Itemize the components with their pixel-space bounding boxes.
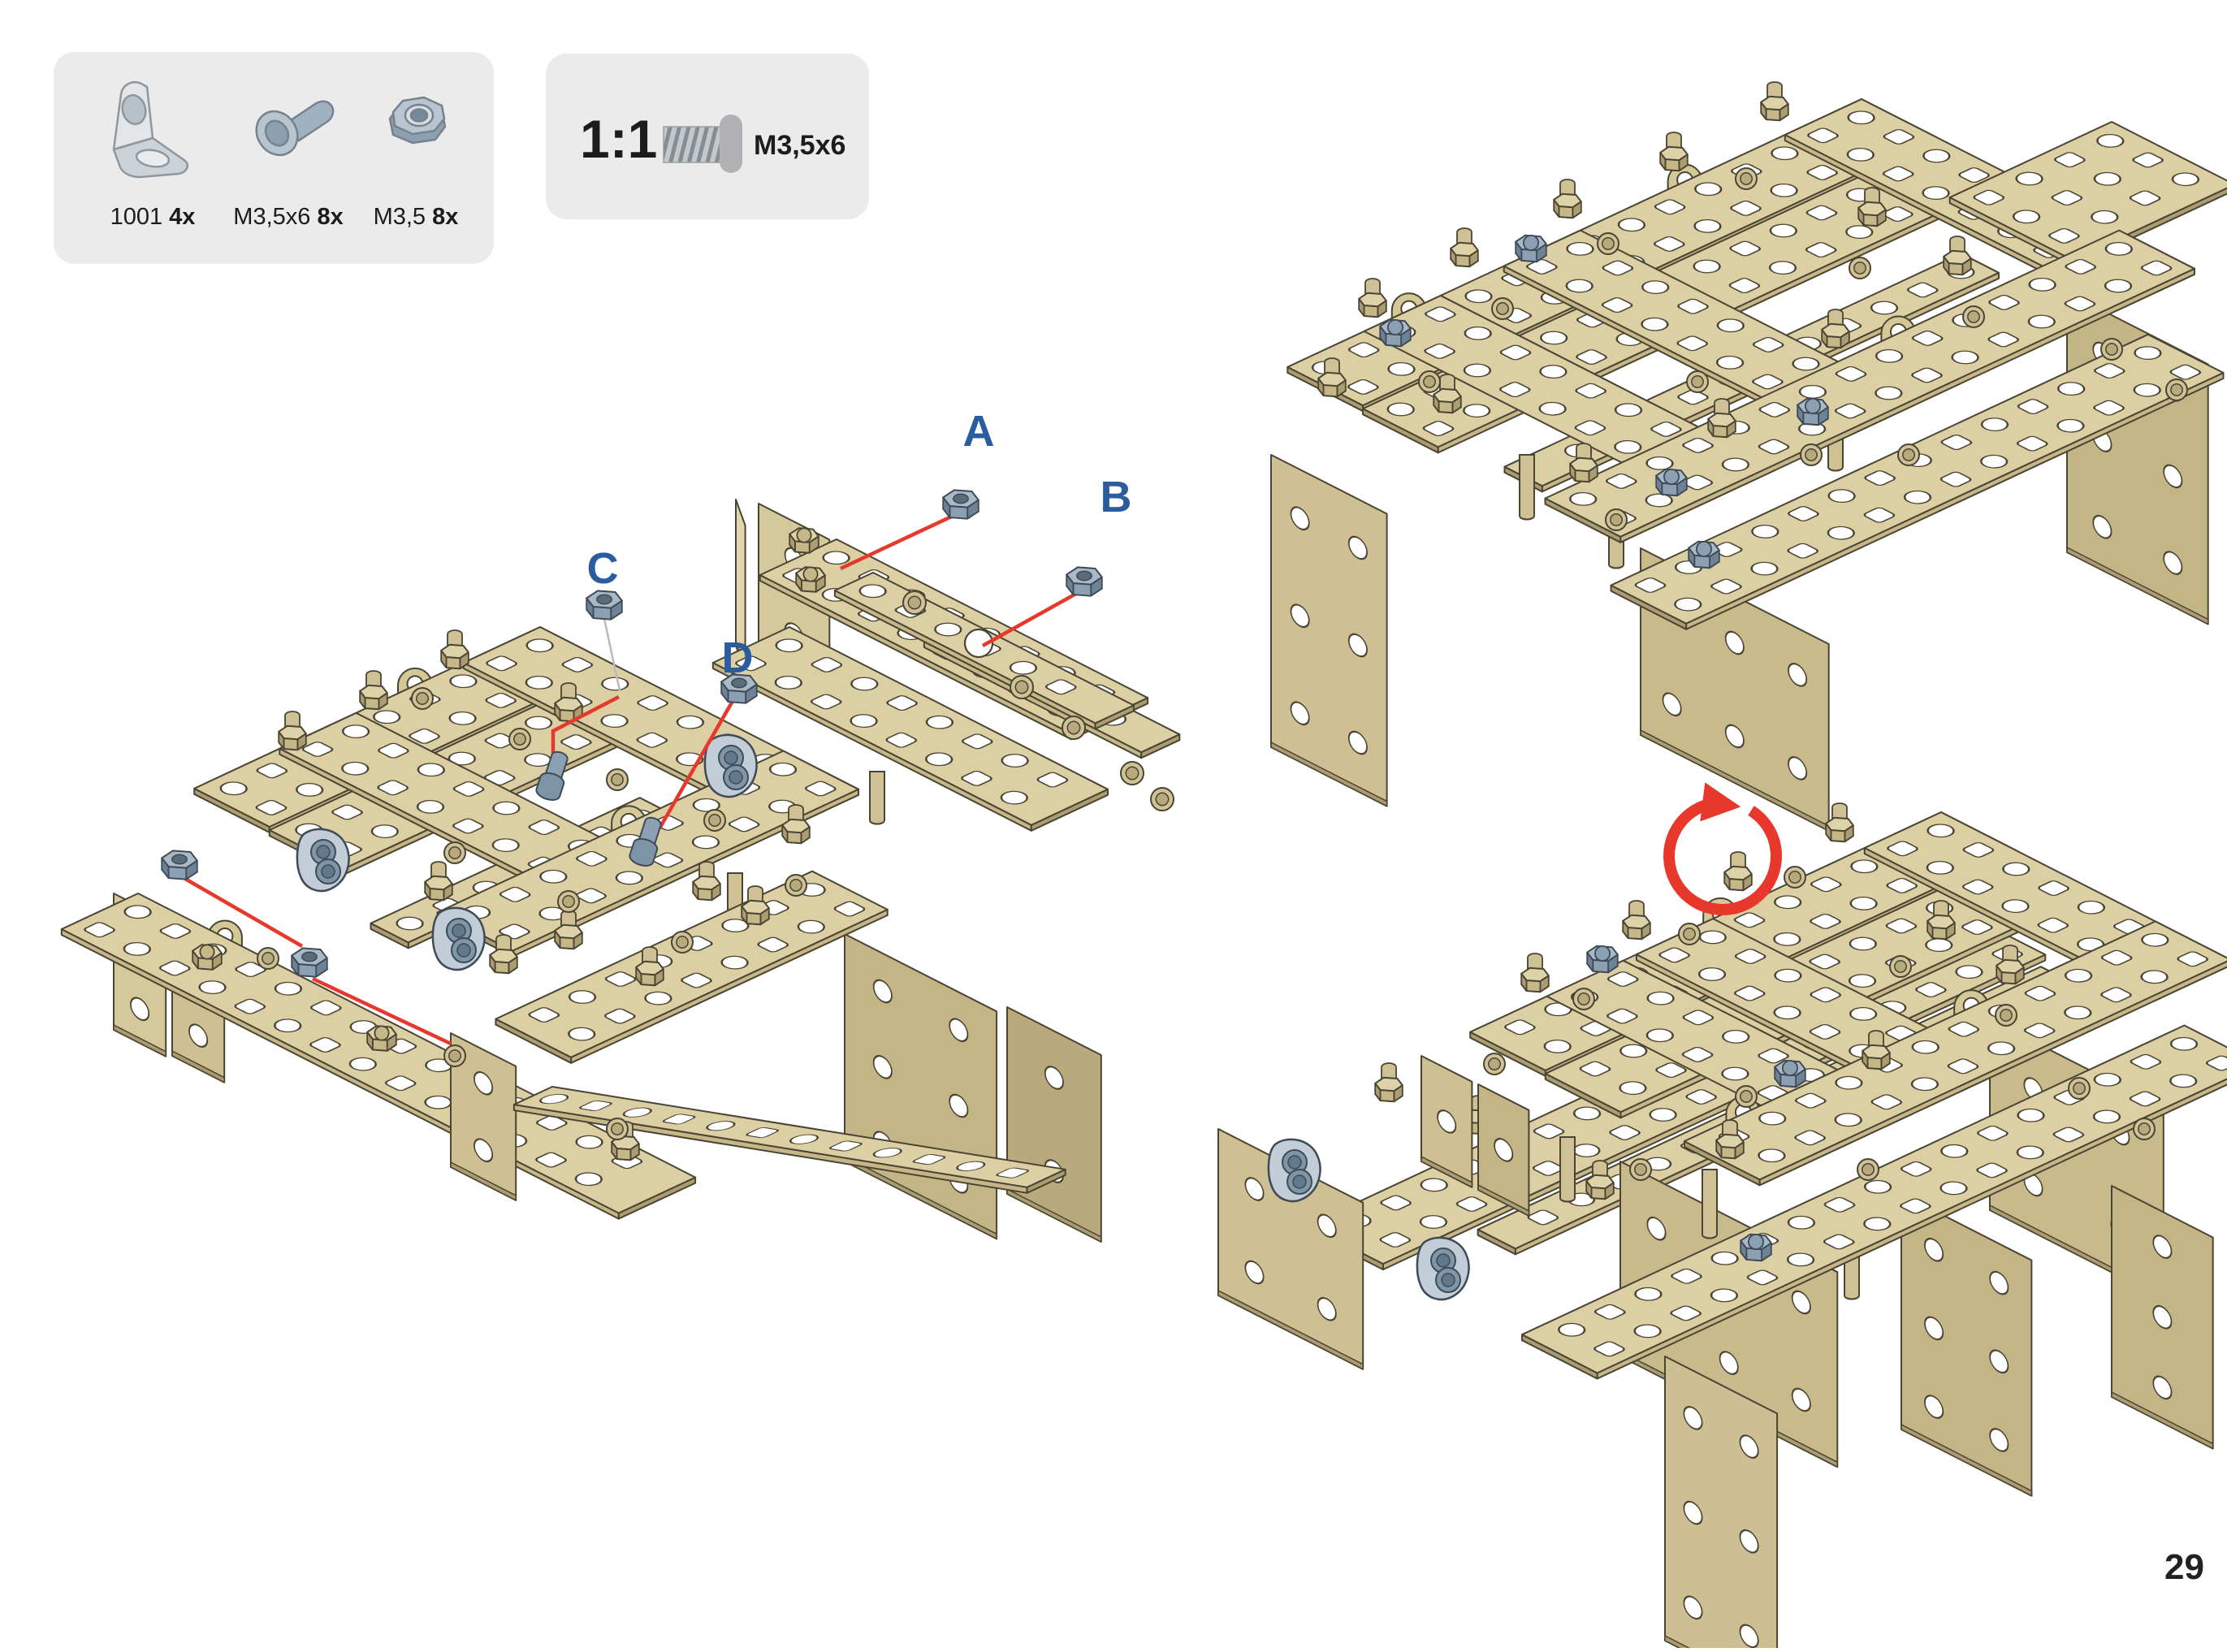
svg-text:M3,5x6: M3,5x6 [754,130,845,161]
svg-text:M3,5x6 8x: M3,5x6 8x [233,204,343,230]
svg-text:M3,5 8x: M3,5 8x [374,204,459,230]
svg-text:D: D [722,634,754,682]
svg-text:1001 4x: 1001 4x [110,204,196,230]
svg-text:A: A [963,407,995,456]
svg-text:29: 29 [2164,1547,2204,1587]
svg-text:1:1: 1:1 [580,109,657,169]
svg-text:C: C [587,544,619,593]
svg-text:B: B [1101,473,1132,521]
